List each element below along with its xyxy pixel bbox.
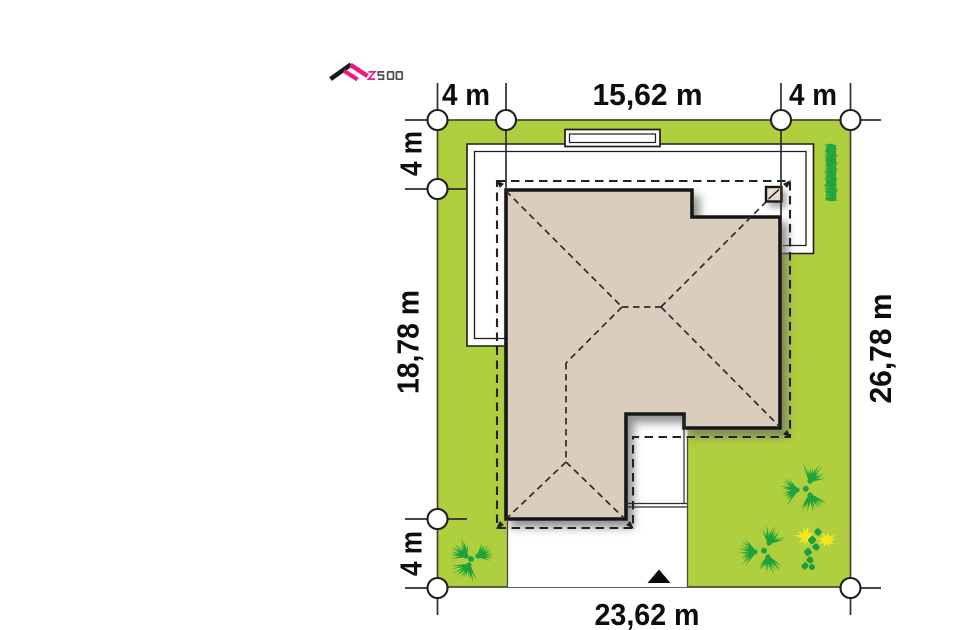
svg-text:4 m: 4 m [442, 78, 490, 112]
svg-text:4 m: 4 m [395, 531, 429, 576]
svg-text:4 m: 4 m [395, 131, 429, 176]
svg-text:18,78 m: 18,78 m [392, 290, 426, 394]
svg-text:23,62 m: 23,62 m [595, 598, 700, 630]
svg-text:15,62 m: 15,62 m [593, 78, 703, 112]
svg-text:26,78 m: 26,78 m [864, 294, 898, 404]
svg-text:4 m: 4 m [789, 78, 837, 112]
